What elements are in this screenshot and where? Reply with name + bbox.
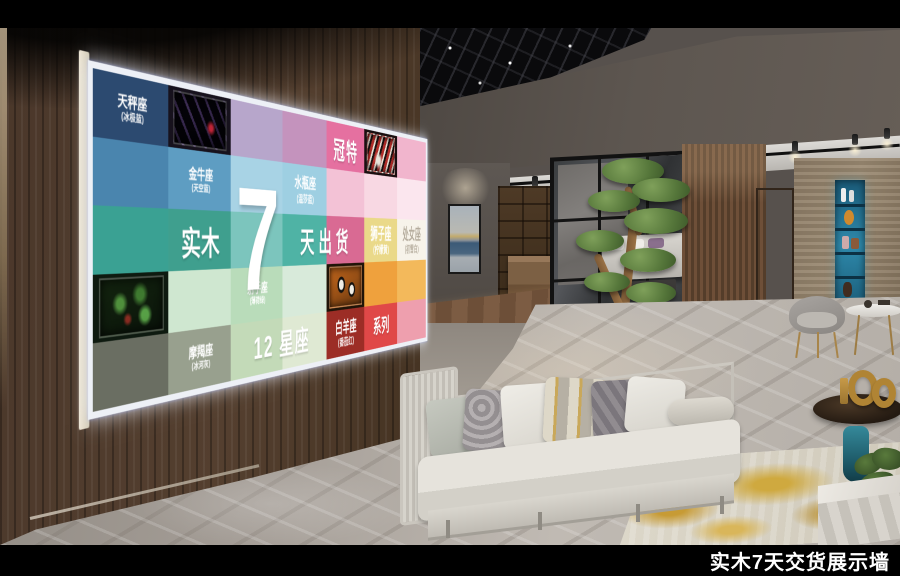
display-niche-panda [329,265,361,309]
table-decor [878,300,890,305]
table-top [846,304,900,317]
footer-series: 系列 [373,309,389,339]
chair-leg [795,332,801,358]
decor-vase [843,282,852,297]
decor-vase [844,210,854,225]
display-niche-stripe-dark [173,90,226,152]
niche-shelf [835,204,865,207]
zodiac-label: 水瓶座 [294,174,316,194]
display-niche-stripe-red [367,132,395,175]
art-spotlight-glow [438,168,493,208]
board-tile-r1c6 [364,129,397,178]
bonsai-foliage [584,272,630,292]
showroom-photo: 天秤座(冰极蓝)金牛座(天空蓝)水瓶座(温莎蓝)狮子座(柠檬黄)处女座(初雪白)… [0,0,900,576]
color-name-label: (冰河灰) [192,360,211,374]
accent-chair [789,296,847,358]
board-tile-r5c2: 摩羯座(冰河灰) [169,325,231,395]
photo-area: 天秤座(冰极蓝)金牛座(天空蓝)水瓶座(温莎蓝)狮子座(柠檬黄)处女座(初雪白)… [0,28,900,545]
chair-leg [817,332,819,358]
board-tile-r1c2 [169,85,231,155]
board-tile-r4c1 [93,271,169,343]
table-decor [864,300,872,308]
bonsai-foliage [624,208,688,234]
chair-cushion [797,312,837,328]
decor-bottle [849,190,854,202]
decor-figurine [842,236,849,249]
board-tile-r5c7 [397,298,426,343]
sofa-leg [446,520,450,538]
big-number-7: 7 [236,154,279,325]
board-tile-r1c7 [397,136,426,181]
board-tile-r2c1 [93,137,169,209]
bonsai-foliage [576,230,624,252]
board-tile-r2c4: 水瓶座(温莎蓝) [283,162,327,216]
board-tile-r2c2: 金牛座(天空蓝) [169,147,231,212]
table-leg [854,315,860,355]
board-tile-r1c4 [283,111,327,169]
headline-solid-wood: 实木 [181,216,220,264]
display-niche-plants [99,275,164,338]
wall-corner-highlight [0,28,7,408]
niche-shelf [835,228,865,231]
letterbox-top [0,0,900,28]
color-name-label: (天空蓝) [192,184,211,196]
board-tile-r3c6: 狮子座(柠檬黄) [364,218,397,262]
spotlight [884,128,890,139]
brand-logo-guante: 冠特 [334,130,359,169]
board-tile-r4c5 [327,262,365,312]
spotlight [852,134,858,145]
sofa-leg [538,512,542,530]
headline-days-shipping: 天出货 [300,219,352,261]
board-tile-r2c6 [364,173,397,219]
fabric-sofa [398,354,750,545]
bonsai-foliage [632,178,690,202]
decor-figurine [851,238,859,249]
gold-ring-sculpture [872,378,896,408]
table-leg [888,315,894,355]
color-name-label: (番茄红) [338,335,354,349]
board-tile-r4c6 [364,261,397,307]
color-name-label: (初雪白) [405,244,419,255]
zodiac-label: 狮子座 [371,224,392,245]
board-tile-r5c5: 白羊座(番茄红) [327,307,365,360]
zodiac-label: 处女座 [403,225,421,244]
side-table-small [846,300,900,360]
board-tile-r1c3 [231,99,283,162]
board-tile-r5c1 [93,333,169,412]
board-tile-r4c2 [169,268,231,333]
bonsai-foliage [626,282,676,304]
bonsai-foliage [588,190,640,212]
gold-vase [840,378,848,404]
sofa-leg [720,496,724,514]
caption-bar: 实木7天交货展示墙 [0,545,900,576]
marble-bench [818,480,900,545]
color-name-label: (柠檬黄) [373,244,389,256]
board-tile-r3c7: 处女座(初雪白) [397,219,426,261]
color-name-label: (温莎蓝) [297,193,314,205]
board-tile-r2c5 [327,168,365,218]
board-tile-r4c4 [283,264,327,318]
abstract-painting [448,204,481,274]
photo-caption: 实木7天交货展示墙 [710,546,890,575]
board-tile-r4c7 [397,259,426,302]
decor-bottle [841,188,846,202]
chair-leg [833,332,839,358]
board-tile-r1c1: 天秤座(冰极蓝) [93,68,169,147]
niche-shelf [835,276,865,279]
niche-shelf [835,252,865,255]
board-tile-r2c7 [397,178,426,221]
bonsai-foliage [620,248,676,272]
sofa-leg [636,504,640,522]
spotlight [792,141,798,152]
board-tile-r3c1 [93,206,169,275]
zodiac-label: 金牛座 [189,166,213,185]
